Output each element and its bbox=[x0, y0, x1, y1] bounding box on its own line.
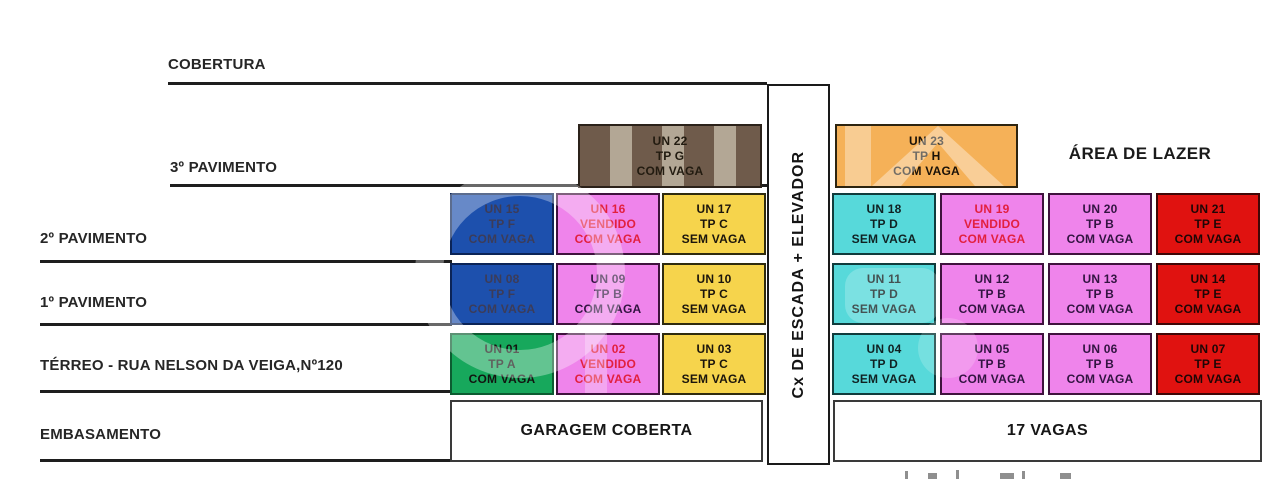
unit-text: UN 13 bbox=[1082, 272, 1117, 287]
unit-un-01: UN 01TP ACOM VAGA bbox=[450, 333, 554, 395]
parking-bar: 17 VAGAS bbox=[833, 400, 1262, 462]
unit-text: VENDIDO bbox=[580, 357, 636, 372]
unit-text: UN 22 bbox=[652, 134, 687, 149]
unit-un-03: UN 03TP CSEM VAGA bbox=[662, 333, 766, 395]
unit-text: UN 11 bbox=[867, 272, 901, 287]
unit-un-04: UN 04TP DSEM VAGA bbox=[832, 333, 936, 395]
elevator-core-label: Cx DE ESCADA + ELEVADOR bbox=[790, 151, 808, 398]
unit-text: COM VAGA bbox=[1175, 302, 1242, 317]
unit-text: SEM VAGA bbox=[852, 372, 917, 387]
elevator-core: Cx DE ESCADA + ELEVADOR bbox=[767, 84, 830, 465]
floor-line-embasamento bbox=[40, 459, 452, 462]
unit-text: TP F bbox=[489, 217, 516, 232]
unit-text: VENDIDO bbox=[964, 217, 1020, 232]
unit-text: TP G bbox=[656, 149, 685, 164]
unit-un-10: UN 10TP CSEM VAGA bbox=[662, 263, 766, 325]
unit-un-21: UN 21TP ECOM VAGA bbox=[1156, 193, 1260, 255]
unit-text: COM VAGA bbox=[575, 302, 642, 317]
unit-text: COM VAGA bbox=[893, 164, 960, 179]
unit-text: SEM VAGA bbox=[682, 372, 747, 387]
unit-text: UN 20 bbox=[1082, 202, 1117, 217]
unit-text: TP B bbox=[1086, 217, 1114, 232]
unit-un-19: UN 19VENDIDOCOM VAGA bbox=[940, 193, 1044, 255]
floor-label-embasamento: EMBASAMENTO bbox=[40, 426, 161, 443]
unit-un-07: UN 07TP ECOM VAGA bbox=[1156, 333, 1260, 395]
unit-text: TP C bbox=[700, 287, 728, 302]
unit-text: TP C bbox=[700, 357, 728, 372]
unit-un-06: UN 06TP BCOM VAGA bbox=[1048, 333, 1152, 395]
unit-text: UN 19 bbox=[974, 202, 1009, 217]
unit-text: COM VAGA bbox=[959, 232, 1026, 247]
unit-text: TP A bbox=[488, 357, 515, 372]
cropped-text-artifact bbox=[1060, 473, 1071, 479]
unit-text: COM VAGA bbox=[469, 302, 536, 317]
unit-text: TP E bbox=[1194, 217, 1221, 232]
unit-un-18: UN 18TP DSEM VAGA bbox=[832, 193, 936, 255]
unit-text: COM VAGA bbox=[469, 232, 536, 247]
unit-text: COM VAGA bbox=[1067, 232, 1134, 247]
unit-text: VENDIDO bbox=[580, 217, 636, 232]
unit-text: UN 17 bbox=[696, 202, 731, 217]
unit-un-13: UN 13TP BCOM VAGA bbox=[1048, 263, 1152, 325]
unit-text: TP B bbox=[978, 287, 1006, 302]
unit-text: TP B bbox=[1086, 357, 1114, 372]
unit-text: COM VAGA bbox=[1175, 232, 1242, 247]
unit-un-02: UN 02VENDIDOCOM VAGA bbox=[556, 333, 660, 395]
unit-text: TP D bbox=[870, 217, 898, 232]
unit-text: UN 08 bbox=[484, 272, 519, 287]
floor-label-cobertura: COBERTURA bbox=[168, 56, 266, 73]
unit-text: COM VAGA bbox=[1067, 372, 1134, 387]
unit-text: UN 05 bbox=[974, 342, 1009, 357]
unit-text: TP E bbox=[1194, 357, 1221, 372]
unit-text: TP F bbox=[489, 287, 516, 302]
unit-text: COM VAGA bbox=[575, 232, 642, 247]
garage-bar: GARAGEM COBERTA bbox=[450, 400, 763, 462]
unit-text: UN 04 bbox=[866, 342, 901, 357]
unit-text: TP H bbox=[913, 149, 941, 164]
garage-bar-label: GARAGEM COBERTA bbox=[521, 422, 693, 440]
unit-text: TP B bbox=[978, 357, 1006, 372]
unit-text: COM VAGA bbox=[959, 372, 1026, 387]
unit-un-11: UN 11TP DSEM VAGA bbox=[832, 263, 936, 325]
floor-label-3-pavimento: 3º PAVIMENTO bbox=[170, 159, 277, 176]
unit-text: SEM VAGA bbox=[682, 232, 747, 247]
unit-un-08: UN 08TP FCOM VAGA bbox=[450, 263, 554, 325]
unit-text: UN 10 bbox=[696, 272, 731, 287]
unit-un-09: UN 09TP BCOM VAGA bbox=[556, 263, 660, 325]
unit-un-14: UN 14TP ECOM VAGA bbox=[1156, 263, 1260, 325]
floor-line-2-pavimento bbox=[40, 260, 452, 263]
unit-text: UN 21 bbox=[1190, 202, 1225, 217]
floor-label-terreo: TÉRREO - RUA NELSON DA VEIGA,Nº120 bbox=[40, 357, 343, 374]
floor-line-1-pavimento bbox=[40, 323, 452, 326]
floor-label-2-pavimento: 2º PAVIMENTO bbox=[40, 230, 147, 247]
unit-text: UN 02 bbox=[590, 342, 625, 357]
floor-label-1-pavimento: 1º PAVIMENTO bbox=[40, 294, 147, 311]
unit-text: SEM VAGA bbox=[852, 232, 917, 247]
unit-text: UN 14 bbox=[1190, 272, 1225, 287]
unit-text: COM VAGA bbox=[959, 302, 1026, 317]
unit-text: TP D bbox=[870, 357, 898, 372]
unit-un-05: UN 05TP BCOM VAGA bbox=[940, 333, 1044, 395]
leisure-area-label: ÁREA DE LAZER bbox=[1020, 144, 1260, 164]
floor-line-cobertura bbox=[168, 82, 767, 85]
cropped-text-artifact bbox=[928, 473, 937, 479]
cropped-text-artifact bbox=[905, 471, 908, 479]
unit-text: UN 06 bbox=[1082, 342, 1117, 357]
parking-bar-label: 17 VAGAS bbox=[1007, 422, 1088, 440]
unit-text: COM VAGA bbox=[469, 372, 536, 387]
unit-text: COM VAGA bbox=[1175, 372, 1242, 387]
unit-un-17: UN 17TP CSEM VAGA bbox=[662, 193, 766, 255]
unit-text: UN 09 bbox=[590, 272, 625, 287]
unit-un-23: UN 23TP HCOM VAGA bbox=[835, 124, 1018, 188]
unit-text: TP B bbox=[594, 287, 622, 302]
cropped-text-artifact bbox=[1000, 473, 1014, 479]
unit-un-15: UN 15TP FCOM VAGA bbox=[450, 193, 554, 255]
unit-text: COM VAGA bbox=[575, 372, 642, 387]
unit-text: TP D bbox=[870, 287, 898, 302]
cropped-text-artifact bbox=[1022, 471, 1025, 479]
unit-text: TP B bbox=[1086, 287, 1114, 302]
unit-text: UN 07 bbox=[1190, 342, 1225, 357]
unit-text: UN 16 bbox=[590, 202, 625, 217]
unit-text: COM VAGA bbox=[1067, 302, 1134, 317]
unit-text: UN 12 bbox=[974, 272, 1009, 287]
unit-un-20: UN 20TP BCOM VAGA bbox=[1048, 193, 1152, 255]
unit-text: UN 15 bbox=[484, 202, 519, 217]
unit-text: COM VAGA bbox=[637, 164, 704, 179]
unit-un-12: UN 12TP BCOM VAGA bbox=[940, 263, 1044, 325]
building-stacking-diagram: COBERTURA 3º PAVIMENTO 2º PAVIMENTO 1º P… bbox=[0, 0, 1280, 479]
unit-text: SEM VAGA bbox=[852, 302, 917, 317]
cropped-text-artifact bbox=[956, 470, 959, 479]
unit-text: TP C bbox=[700, 217, 728, 232]
unit-text: UN 03 bbox=[696, 342, 731, 357]
unit-text: UN 23 bbox=[909, 134, 944, 149]
floor-line-terreo bbox=[40, 390, 452, 393]
unit-text: UN 01 bbox=[484, 342, 519, 357]
unit-text: UN 18 bbox=[866, 202, 901, 217]
unit-text: TP E bbox=[1194, 287, 1221, 302]
unit-un-22: UN 22TP GCOM VAGA bbox=[578, 124, 762, 188]
unit-un-16: UN 16VENDIDOCOM VAGA bbox=[556, 193, 660, 255]
unit-text: SEM VAGA bbox=[682, 302, 747, 317]
